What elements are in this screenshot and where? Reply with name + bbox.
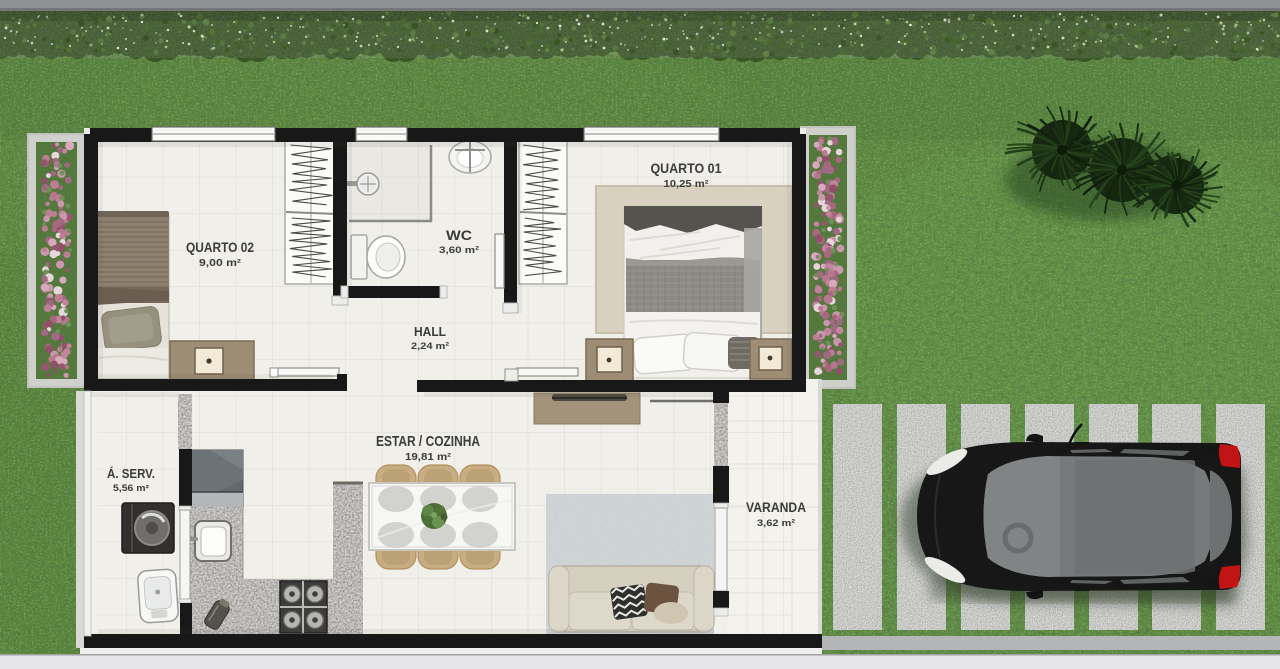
- svg-text:10,25 m²: 10,25 m²: [664, 179, 710, 190]
- svg-text:Á. SERV.: Á. SERV.: [107, 466, 155, 481]
- svg-text:WC: WC: [446, 227, 472, 243]
- svg-text:VARANDA: VARANDA: [746, 500, 806, 515]
- svg-text:5,56 m²: 5,56 m²: [113, 483, 149, 493]
- svg-text:HALL: HALL: [414, 324, 446, 339]
- svg-text:QUARTO 01: QUARTO 01: [651, 160, 722, 176]
- svg-text:3,60 m²: 3,60 m²: [439, 245, 479, 256]
- svg-text:9,00 m²: 9,00 m²: [199, 258, 242, 269]
- svg-text:2,24 m²: 2,24 m²: [411, 341, 449, 352]
- svg-text:19,81 m²: 19,81 m²: [405, 452, 452, 463]
- svg-text:QUARTO 02: QUARTO 02: [186, 239, 254, 255]
- svg-text:3,62 m²: 3,62 m²: [757, 518, 795, 529]
- svg-text:ESTAR / COZINHA: ESTAR / COZINHA: [376, 433, 480, 450]
